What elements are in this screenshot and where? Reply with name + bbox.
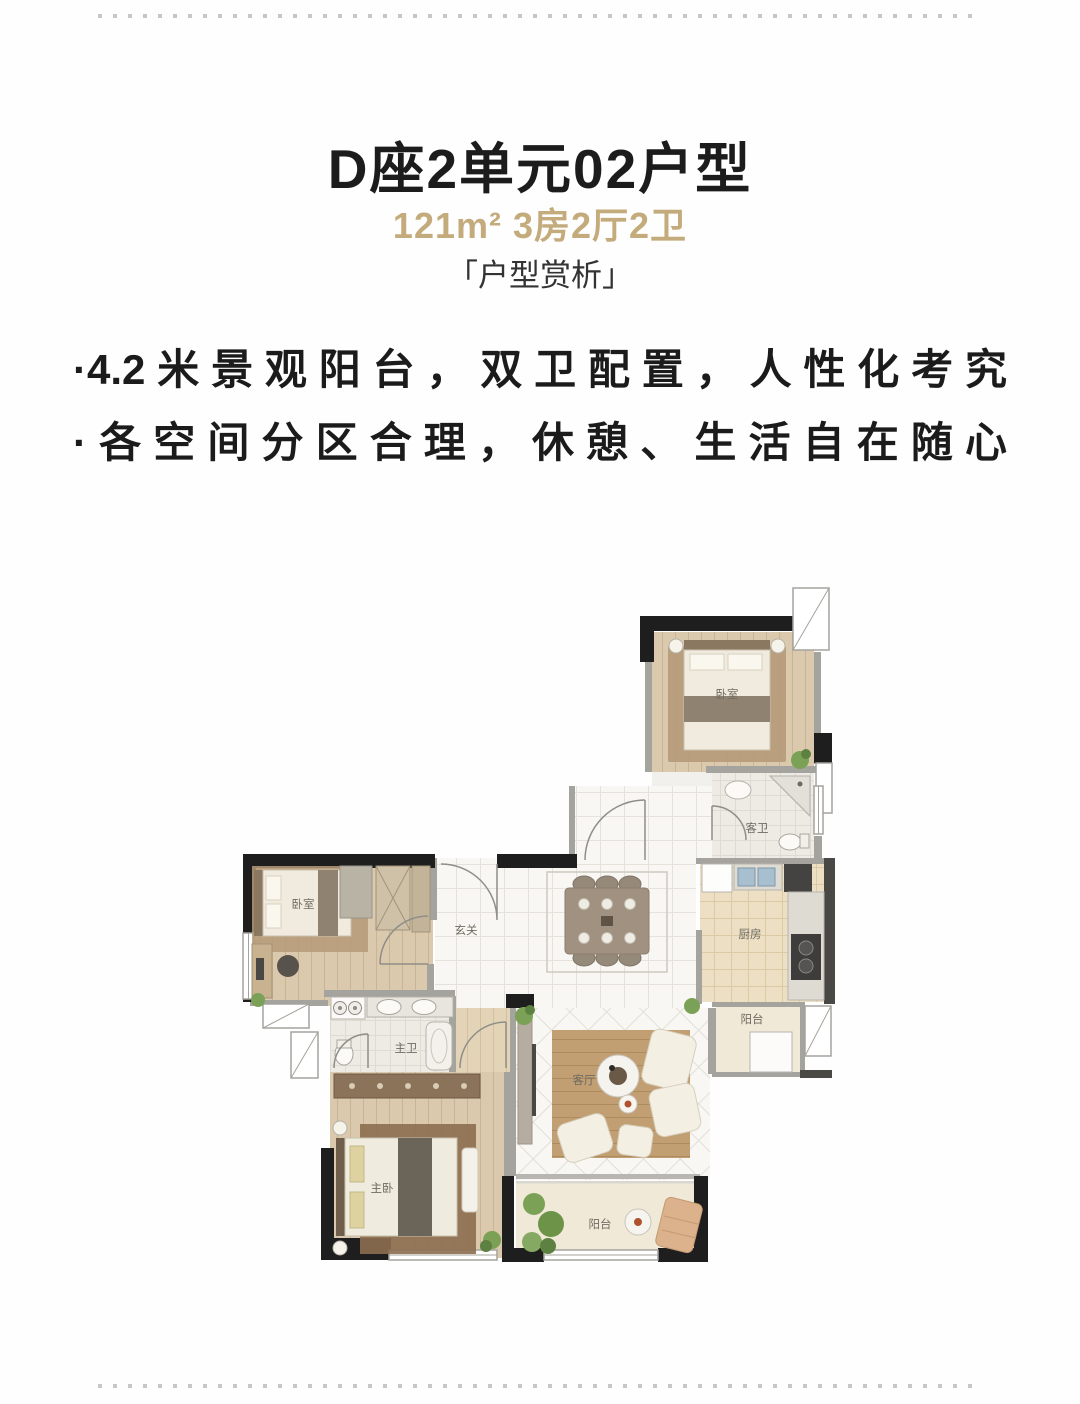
room-label-bedroom-top: 卧室 (716, 687, 739, 701)
room-label-guest-bath: 客卫 (746, 821, 769, 835)
section-label: 「户型赏析」 (0, 250, 1080, 295)
room-label-balcony-bottom: 阳台 (589, 1217, 612, 1231)
room-label-kitchen: 厨房 (739, 928, 762, 941)
highlight-item: ·4.2米景观阳台，双卫配置，人性化考究 (73, 333, 1007, 406)
room-label-balcony-right: 阳台 (741, 1012, 764, 1026)
floorplan-svg: 卧室 客卫 厨房 阳台 玄关 (233, 580, 845, 1290)
highlight-list: ·4.2米景观阳台，双卫配置，人性化考究 ·各空间分区合理，休憩、生活自在随心 (73, 333, 1007, 479)
floorplan: 卧室 客卫 厨房 阳台 玄关 (233, 580, 845, 1290)
dotted-divider-top (98, 14, 982, 18)
room-label-living: 客厅 (573, 1073, 596, 1087)
dotted-divider-bottom (98, 1384, 982, 1388)
room-label-bedroom-left: 卧室 (292, 897, 315, 911)
page: { "header": { "title": "D座2单元02户型", "sub… (0, 0, 1080, 1404)
room-label-entry: 玄关 (455, 923, 478, 937)
highlight-item: ·各空间分区合理，休憩、生活自在随心 (73, 406, 1007, 479)
room-label-master-bedroom: 主卧 (371, 1182, 394, 1195)
room-label-master-bath: 主卫 (395, 1042, 418, 1055)
unit-spec-subtitle: 121m² 3房2厅2卫 (0, 197, 1080, 249)
page-title: D座2单元02户型 (0, 124, 1080, 204)
